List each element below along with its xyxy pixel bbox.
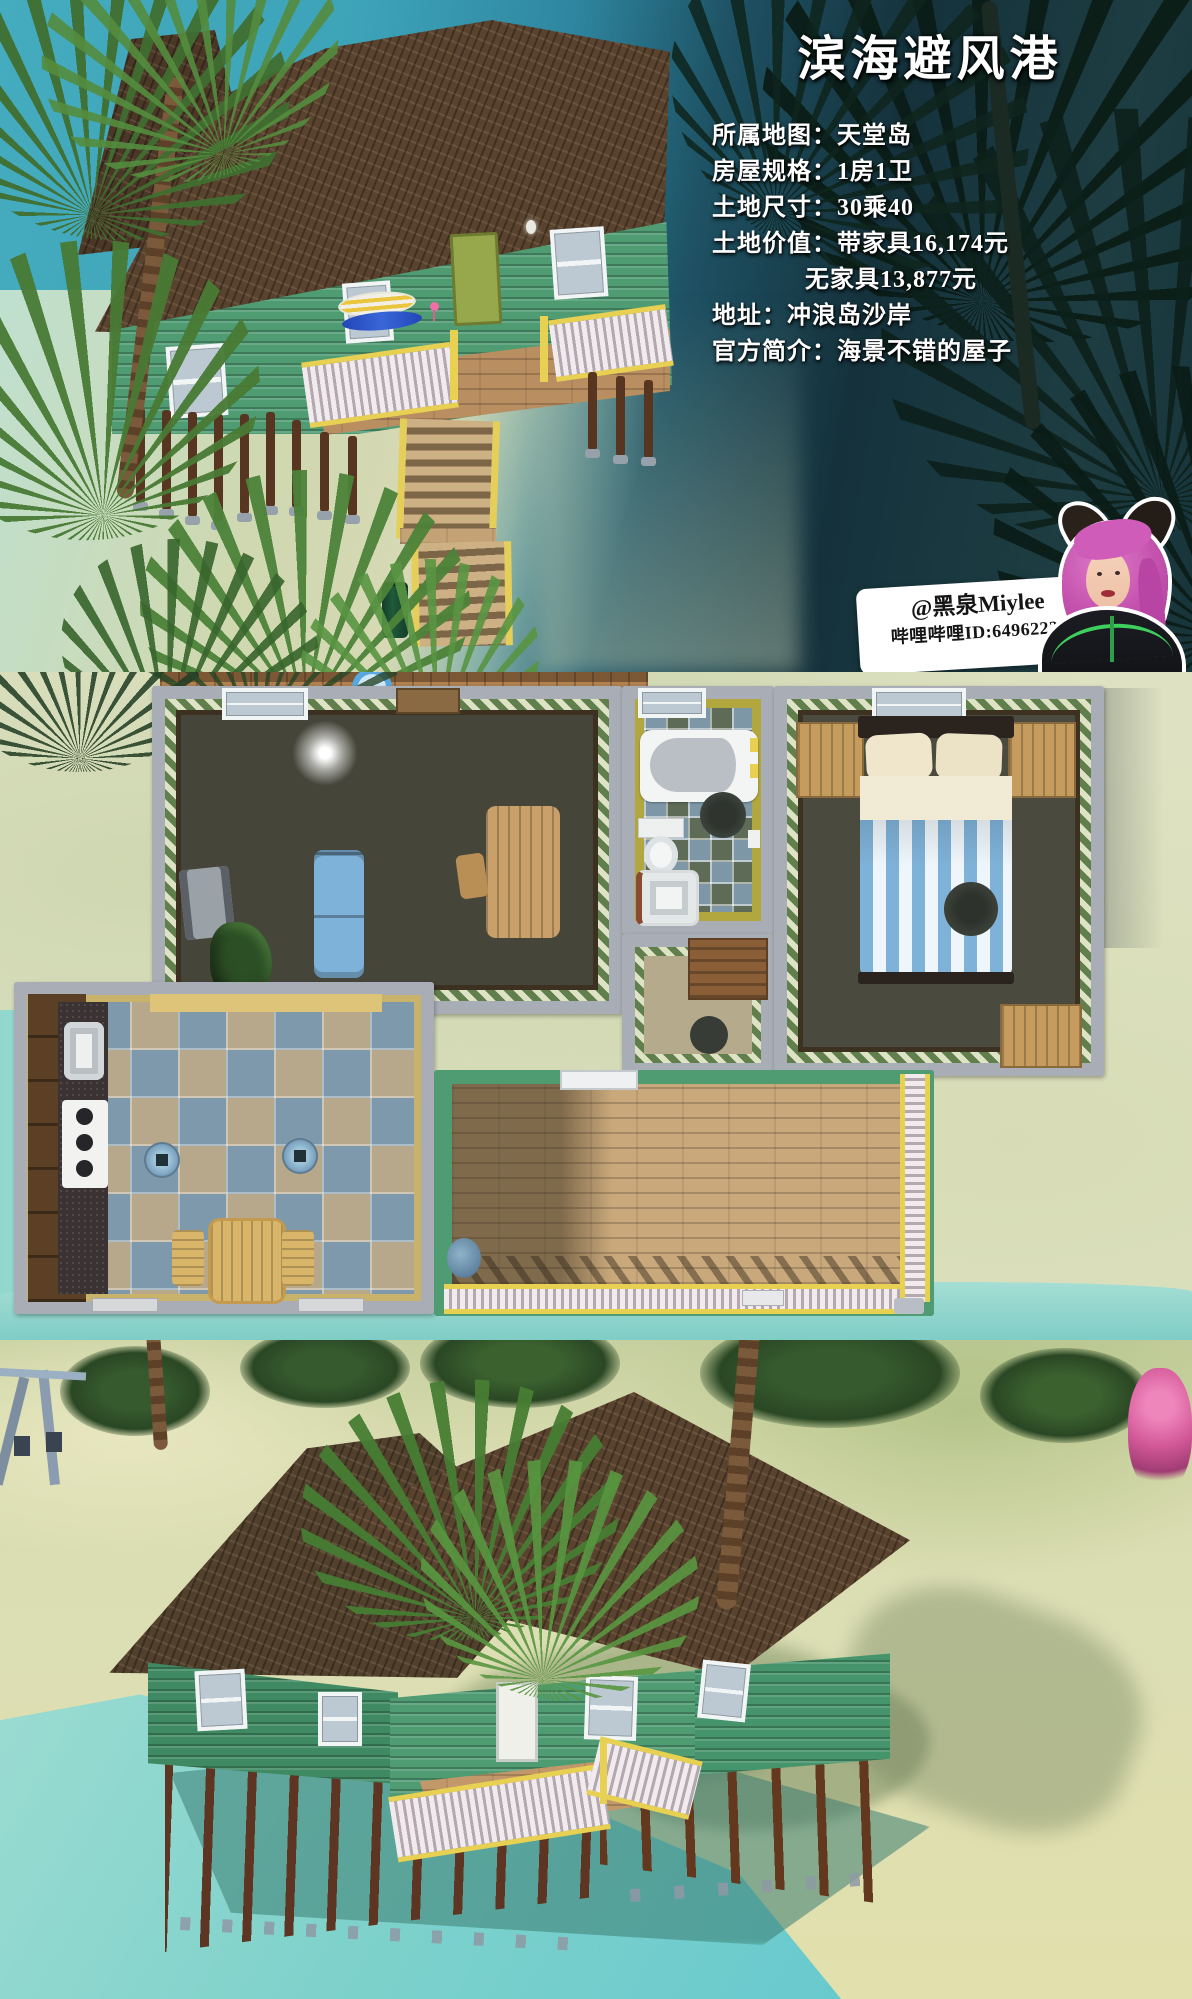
kitchen-table xyxy=(208,1218,286,1304)
hall-mat xyxy=(690,1016,728,1054)
info-line-size: 土地尺寸：30乘40 xyxy=(712,190,1012,226)
window xyxy=(697,1660,751,1723)
living-door-top xyxy=(396,688,460,714)
deck-door-top xyxy=(560,1070,638,1090)
toilet-tank xyxy=(638,818,684,838)
door-threshold xyxy=(92,1298,158,1312)
property-info: 所属地图：天堂岛 房屋规格：1房1卫 土地尺寸：30乘40 土地价值：带家具16… xyxy=(712,118,1012,370)
avatar-zipper xyxy=(1110,616,1114,662)
railing-post xyxy=(540,316,548,382)
stove-burner xyxy=(76,1108,93,1125)
floor-lamp-center xyxy=(156,1154,168,1166)
pink-flower-bush xyxy=(1128,1368,1192,1492)
stilt xyxy=(616,376,625,456)
info-line-value-furnished: 土地价值：带家具16,174元 xyxy=(712,226,1012,262)
sofa xyxy=(314,850,364,978)
bathroom-sink xyxy=(636,870,699,926)
water-barrel xyxy=(447,1238,481,1278)
kitchen-sink xyxy=(64,1022,104,1080)
avatar-eye xyxy=(1115,571,1120,575)
bathroom-window xyxy=(638,688,706,718)
kitchen-chair xyxy=(172,1230,204,1286)
door-threshold xyxy=(298,1298,364,1312)
deck-railing-right xyxy=(900,1074,930,1302)
front-door xyxy=(450,232,503,326)
bush xyxy=(60,1346,210,1436)
living-window xyxy=(222,688,308,720)
bedroom-rug xyxy=(944,882,998,936)
page-title: 滨海避风港 xyxy=(700,34,1160,87)
deck-corner-post xyxy=(894,1298,924,1314)
avatar-eye xyxy=(1097,572,1102,576)
info-line-spec: 房屋规格：1房1卫 xyxy=(712,154,1012,190)
towel xyxy=(750,738,758,752)
deck-threshold xyxy=(742,1290,784,1306)
swing-seat xyxy=(46,1432,62,1452)
railing-shadow-stripes xyxy=(452,1256,920,1284)
kitchen-chair xyxy=(282,1230,314,1286)
floorplan xyxy=(0,672,1192,1340)
section-exterior-top: 滨海避风港 所属地图：天堂岛 房屋规格：1房1卫 土地尺寸：30乘40 土地价值… xyxy=(0,0,1192,672)
dresser-left xyxy=(796,722,864,798)
window xyxy=(194,1669,247,1732)
floor-lamp-center xyxy=(294,1150,306,1162)
section-exterior-bottom xyxy=(0,1340,1192,1999)
avatar-lips xyxy=(1101,590,1115,597)
stove-burner xyxy=(76,1134,93,1151)
kitchen-counter-band xyxy=(150,994,382,1012)
stove-burner xyxy=(76,1160,93,1177)
info-line-map: 所属地图：天堂岛 xyxy=(712,118,1012,154)
bedroom-door xyxy=(1000,1004,1082,1068)
dresser-right xyxy=(1008,722,1076,798)
bed-footboard xyxy=(858,972,1014,984)
flamingo-leg xyxy=(433,310,435,321)
toilet-paper xyxy=(748,830,760,848)
window xyxy=(318,1692,362,1746)
info-line-value-unfurnished: 无家具13,877元 xyxy=(712,262,1012,298)
hall-bench xyxy=(688,938,768,1000)
bath-mat xyxy=(700,792,746,838)
toilet-bowl xyxy=(644,836,678,874)
pillow xyxy=(865,732,933,781)
dining-chair xyxy=(455,852,489,899)
ceiling-lamp-glow xyxy=(292,720,358,786)
house-showcase-poster: 滨海避风港 所属地图：天堂岛 房屋规格：1房1卫 土地尺寸：30乘40 土地价值… xyxy=(0,0,1192,1999)
porch-post xyxy=(600,1740,607,1804)
swing-seat xyxy=(14,1436,30,1456)
porch-lamp xyxy=(526,220,536,234)
deck-railing-bottom xyxy=(444,1284,922,1314)
window xyxy=(550,226,609,300)
info-line-description: 官方简介：海景不错的屋子 xyxy=(712,334,1012,370)
towel xyxy=(750,764,758,778)
stilt xyxy=(644,380,653,458)
bathtub-basin xyxy=(650,738,736,792)
house-shadow xyxy=(1104,688,1164,948)
stilt xyxy=(588,372,597,450)
bed-sheet xyxy=(860,776,1012,822)
pillow xyxy=(935,733,1003,781)
bush xyxy=(980,1348,1150,1443)
info-line-address: 地址：冲浪岛沙岸 xyxy=(712,298,1012,334)
dining-table xyxy=(486,806,560,938)
railing-post xyxy=(450,330,458,400)
creator-avatar xyxy=(1022,498,1192,672)
